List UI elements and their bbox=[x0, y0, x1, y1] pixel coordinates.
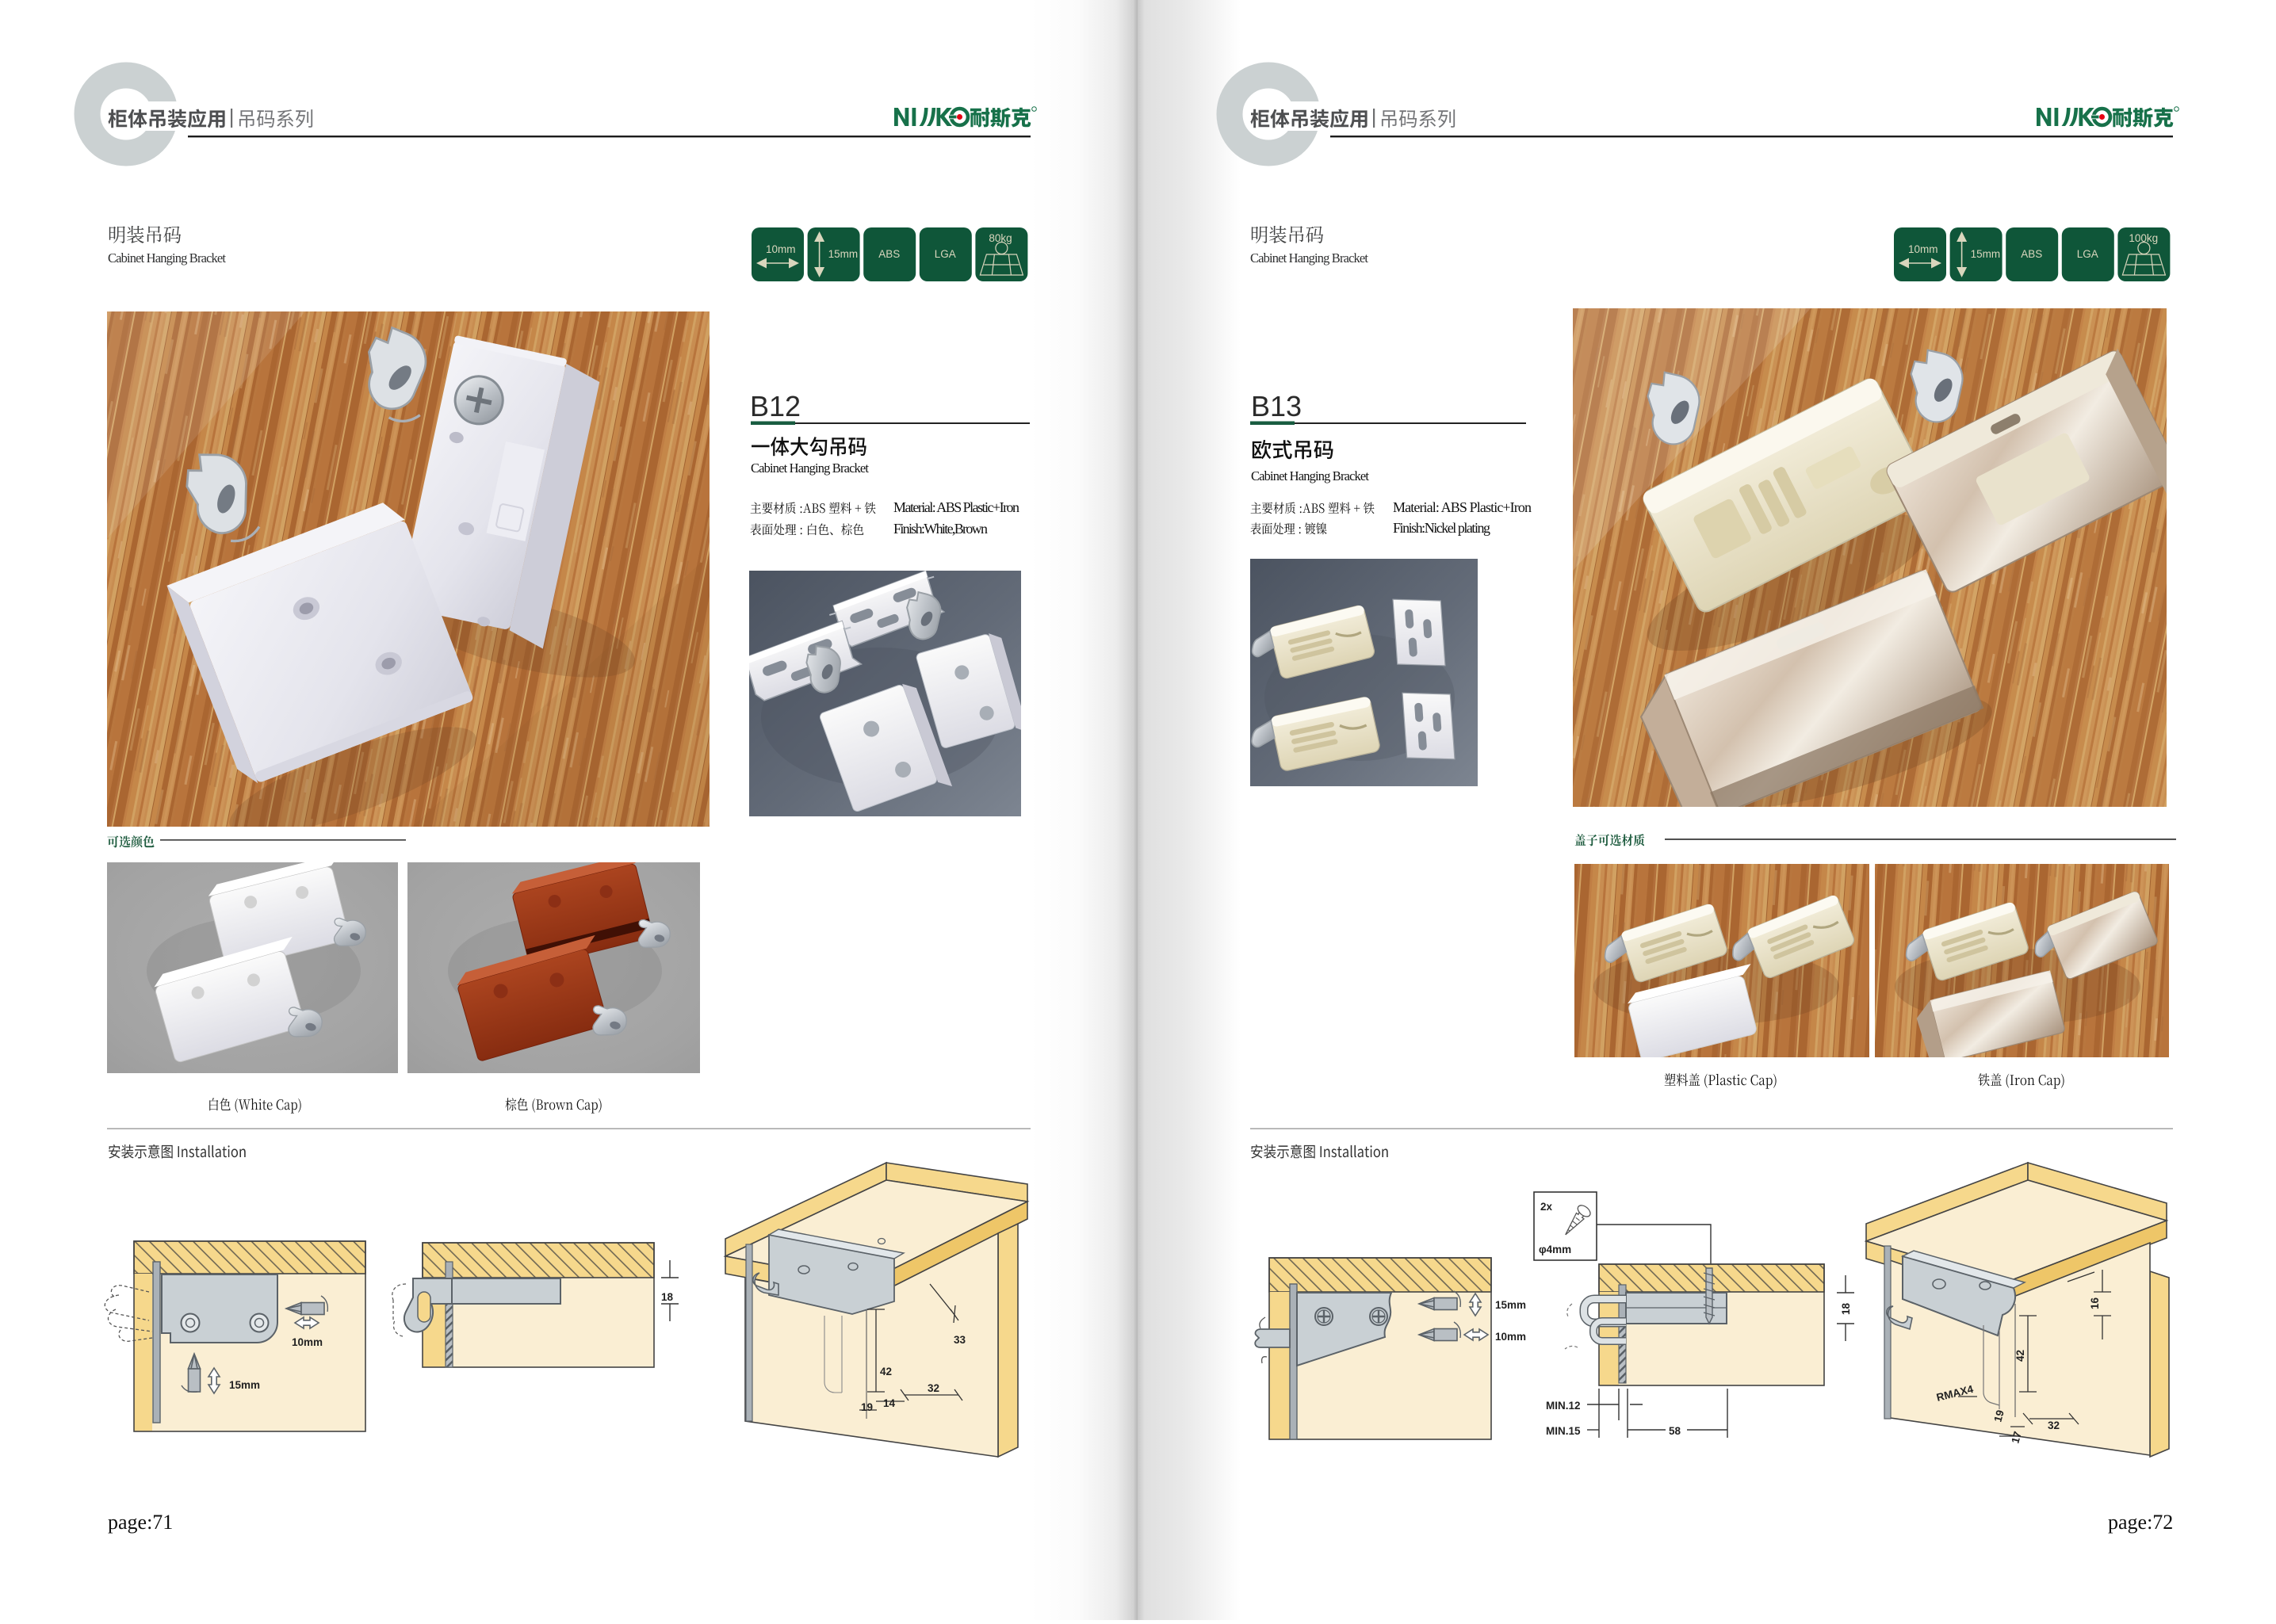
svg-text:18: 18 bbox=[1840, 1302, 1852, 1315]
svg-text:33: 33 bbox=[954, 1334, 966, 1346]
svg-text:LGA: LGA bbox=[935, 248, 956, 260]
svg-text:58: 58 bbox=[1669, 1425, 1681, 1437]
svg-text:MIN.12: MIN.12 bbox=[1546, 1400, 1581, 1412]
svg-text:18: 18 bbox=[661, 1291, 674, 1303]
svg-text:Material: ABS Plastic+Iron: Material: ABS Plastic+Iron bbox=[893, 499, 1019, 515]
svg-text:10mm: 10mm bbox=[1495, 1331, 1526, 1343]
svg-text:10mm: 10mm bbox=[766, 243, 796, 255]
svg-text:2x: 2x bbox=[1540, 1201, 1553, 1213]
svg-text:B12: B12 bbox=[750, 390, 801, 422]
svg-text:page:71: page:71 bbox=[108, 1511, 173, 1534]
svg-text:14: 14 bbox=[883, 1397, 896, 1409]
svg-text:Cabinet Hanging Bracket: Cabinet Hanging Bracket bbox=[751, 460, 869, 476]
svg-text:32: 32 bbox=[2048, 1420, 2060, 1431]
svg-text:42: 42 bbox=[880, 1366, 892, 1378]
svg-text:Finish:White,Brown: Finish:White,Brown bbox=[893, 521, 988, 537]
svg-text:page:72: page:72 bbox=[2108, 1511, 2173, 1534]
svg-text:Material: ABS Plastic+Iron: Material: ABS Plastic+Iron bbox=[1393, 499, 1532, 515]
svg-text:10mm: 10mm bbox=[292, 1336, 323, 1348]
svg-text:φ4mm: φ4mm bbox=[1539, 1244, 1571, 1255]
svg-text:10mm: 10mm bbox=[1908, 243, 1938, 255]
svg-text:16: 16 bbox=[2089, 1297, 2101, 1309]
svg-text:ABS: ABS bbox=[878, 248, 900, 260]
svg-text:32: 32 bbox=[928, 1382, 939, 1394]
svg-text:Cabinet Hanging Bracket: Cabinet Hanging Bracket bbox=[1251, 468, 1369, 483]
svg-text:Cabinet Hanging Bracket: Cabinet Hanging Bracket bbox=[108, 250, 226, 266]
svg-text:LGA: LGA bbox=[2077, 248, 2098, 260]
svg-text:MIN.15: MIN.15 bbox=[1546, 1425, 1581, 1437]
svg-text:15mm: 15mm bbox=[1971, 248, 2001, 260]
svg-text:15mm: 15mm bbox=[828, 248, 859, 260]
svg-text:ABS: ABS bbox=[2021, 248, 2042, 260]
svg-text:42: 42 bbox=[2014, 1350, 2026, 1362]
svg-text:15mm: 15mm bbox=[229, 1379, 260, 1391]
svg-text:B13: B13 bbox=[1251, 390, 1302, 422]
svg-text:15mm: 15mm bbox=[1495, 1299, 1526, 1311]
svg-text:Finish:Nickel plating: Finish:Nickel plating bbox=[1393, 520, 1490, 536]
svg-text:19: 19 bbox=[861, 1401, 873, 1413]
svg-text:Cabinet Hanging Bracket: Cabinet Hanging Bracket bbox=[1250, 250, 1368, 266]
